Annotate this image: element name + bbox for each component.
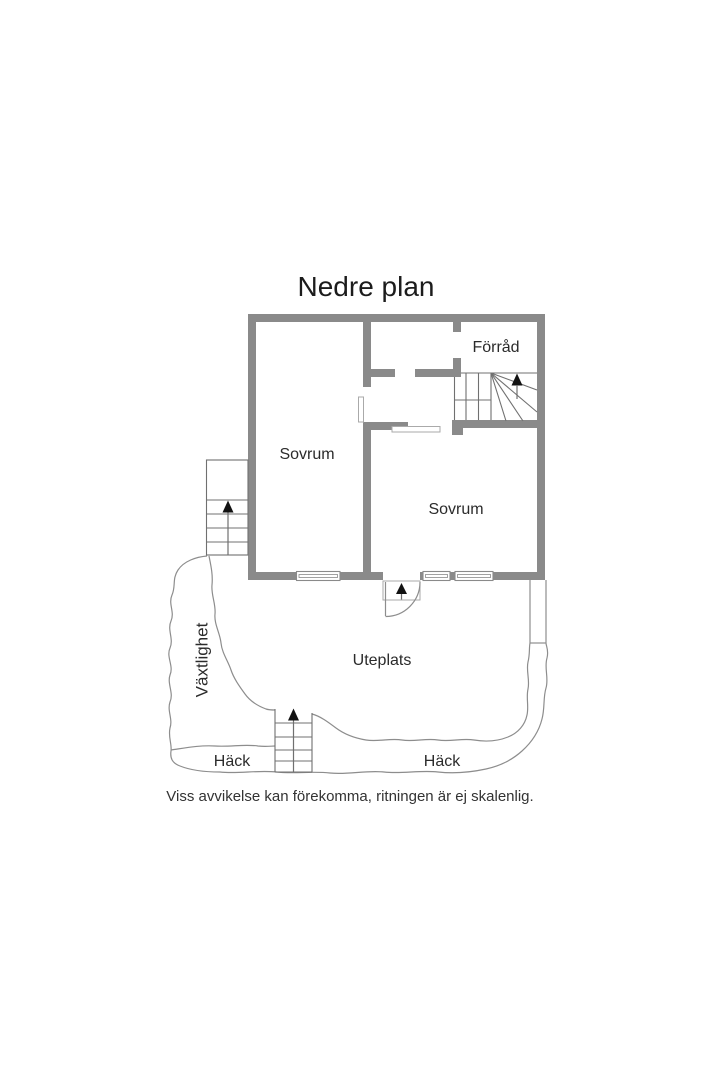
room-label-sovrum-right: Sovrum — [428, 501, 483, 518]
bedroom1-door-leaf — [359, 397, 364, 422]
area-label-hack-right: Häck — [424, 753, 461, 770]
window-separator-wall — [450, 572, 455, 580]
room-label-sovrum-left: Sovrum — [279, 446, 334, 463]
stair-winder-line — [491, 373, 537, 412]
floor-plan-drawing: Nedre plan — [0, 0, 720, 1080]
floor-plan-page: Nedre plan — [0, 0, 720, 1080]
hall-wall-segment-2 — [415, 369, 453, 377]
wall-top — [248, 314, 545, 322]
exterior-stairs-left — [207, 460, 249, 555]
area-label-vaxtlighet: Växtlighet — [193, 622, 212, 697]
wall-right — [537, 314, 545, 580]
disclaimer-text: Viss avvikelse kan förekomma, ritningen … — [166, 788, 533, 805]
entry-door — [383, 571, 420, 617]
page-title: Nedre plan — [298, 271, 435, 302]
door-opening — [383, 571, 420, 581]
stair-bottom-wall-end — [452, 420, 463, 435]
forrad-wall-stub — [453, 322, 461, 332]
up-arrow-icon — [223, 501, 234, 513]
area-label-uteplats: Uteplats — [353, 652, 412, 669]
window-1-glass — [299, 575, 338, 578]
interior-staircase — [455, 373, 538, 421]
stair-winder-line — [491, 373, 506, 421]
wall-left — [248, 314, 256, 580]
up-arrow-icon — [288, 709, 299, 721]
stair-bottom-wall — [452, 420, 545, 428]
window-3-glass — [458, 575, 491, 578]
window-2-glass — [426, 575, 448, 578]
bedroom-divider-wall-lower — [363, 422, 371, 572]
garden-staircase — [275, 709, 312, 773]
bedroom2-sliding-door — [392, 427, 440, 433]
stair-wall-stub — [453, 358, 461, 377]
hedge-inner-edge-right — [312, 643, 530, 741]
up-arrow-icon — [512, 374, 523, 386]
area-label-hack-left: Häck — [214, 753, 251, 770]
room-label-forrad: Förråd — [472, 338, 519, 356]
bedroom-divider-wall-upper — [363, 322, 371, 387]
interior-walls — [363, 322, 545, 572]
up-arrow-icon — [396, 583, 407, 594]
hall-wall-segment-1 — [371, 369, 395, 377]
hedge-inner-edge-left — [171, 745, 275, 750]
